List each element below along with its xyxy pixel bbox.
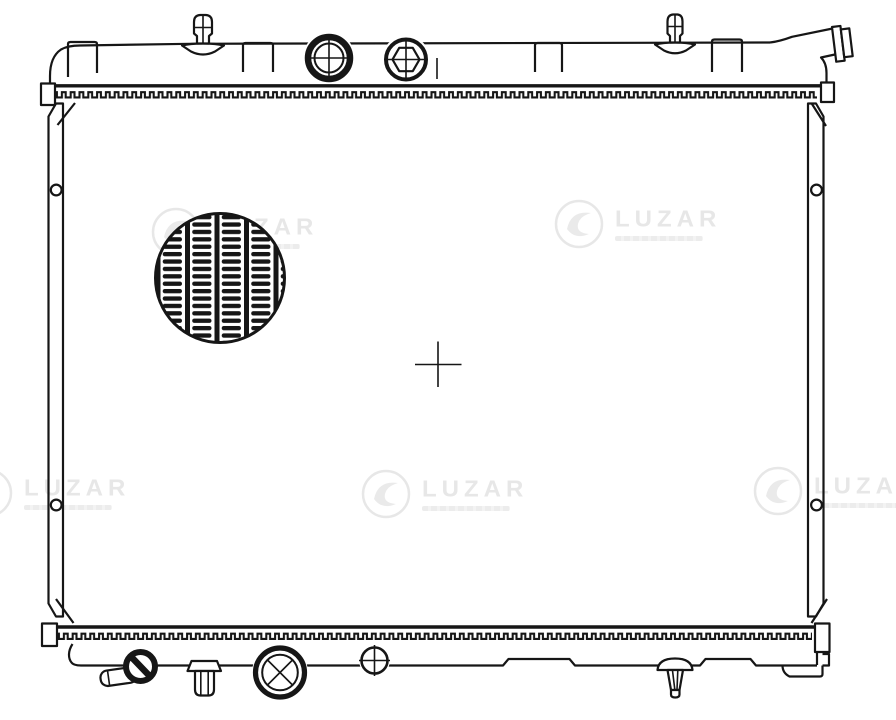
mounting-hole-bottom-left [51, 500, 62, 511]
mounting-tab-1 [68, 42, 97, 77]
core-grille-detail [156, 214, 285, 343]
mounting-hole-bottom-right [811, 500, 822, 511]
mounting-pin-right [658, 659, 693, 698]
drain-cock [126, 652, 155, 681]
crimp-band-top [41, 83, 834, 106]
mounting-tab-3 [535, 43, 562, 72]
top-tank [50, 15, 853, 87]
radiator-catalog-image: LUZAR LUZAR LUZAR LUZAR [0, 0, 896, 720]
service-port [359, 645, 390, 676]
mounting-pin-left [188, 661, 222, 696]
center-mark [415, 342, 462, 388]
crimp-band-bottom [42, 624, 830, 653]
side-bracket-left [49, 103, 76, 623]
radiator-line-drawing [0, 0, 896, 720]
outlet-port [252, 645, 308, 701]
filler-cap [303, 32, 355, 84]
crimp-teeth-top [55, 91, 817, 99]
inlet-pipe [770, 25, 853, 86]
mounting-hole-top-right [811, 185, 822, 196]
mounting-tab-2 [243, 43, 273, 72]
side-bracket-right [808, 104, 827, 624]
bottom-tank [69, 644, 829, 701]
mounting-hole-top-left [51, 185, 62, 196]
mounting-tab-4 [712, 40, 742, 73]
bleed-valve-right [655, 15, 695, 54]
bleed-valve-left [182, 15, 224, 55]
crimp-teeth-bottom [57, 633, 812, 641]
